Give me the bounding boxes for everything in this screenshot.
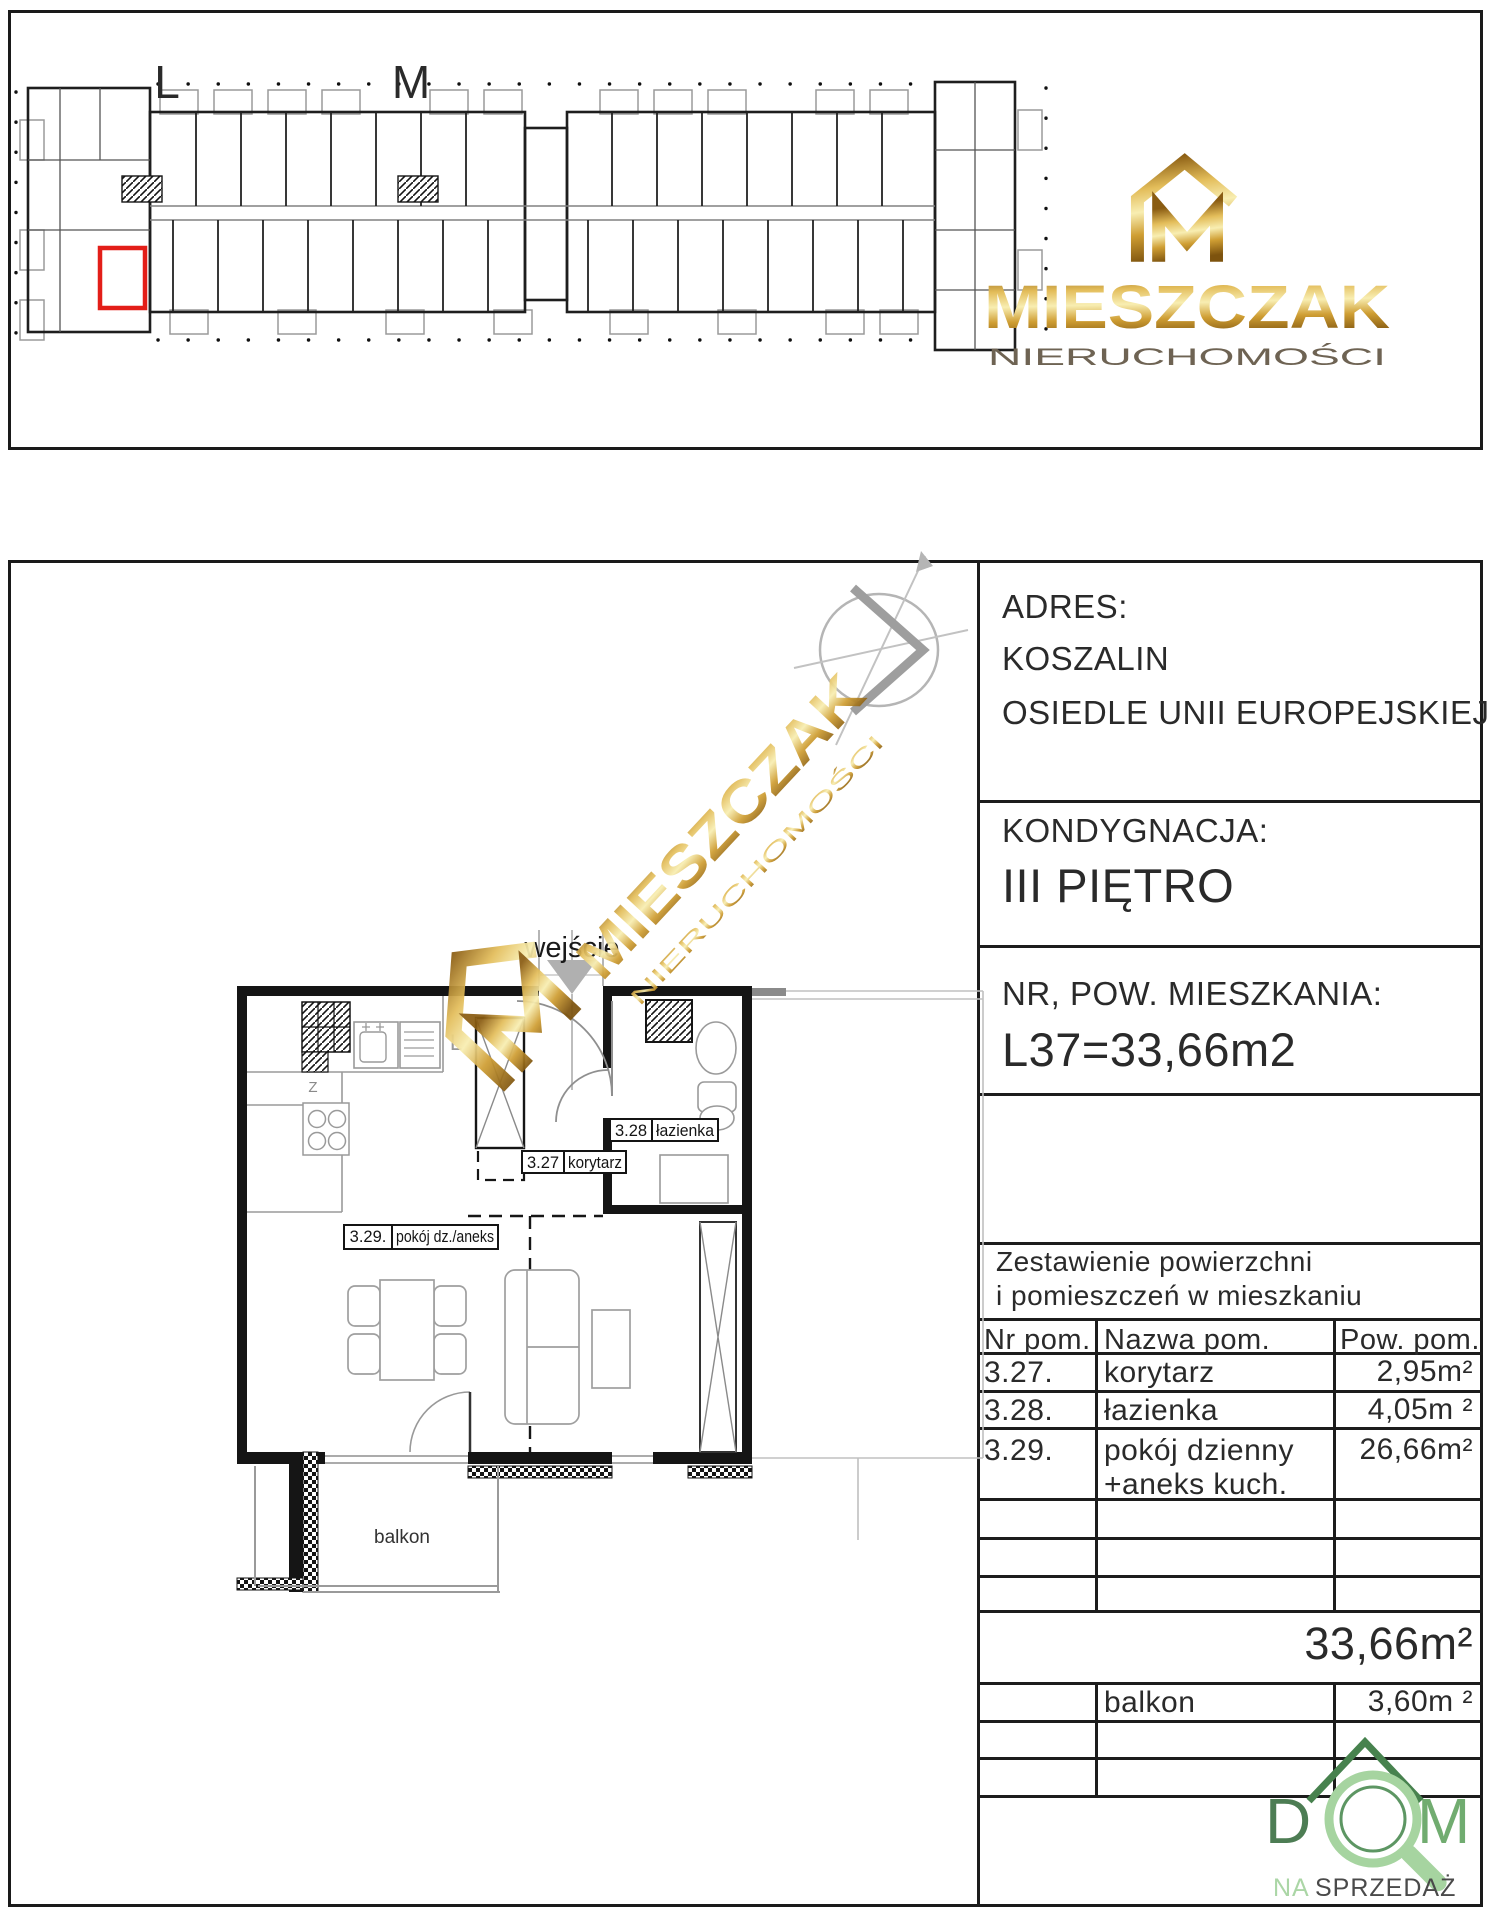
table-row-nr: 3.27. <box>984 1356 1053 1390</box>
floor-value: III PIĘTRO <box>1002 858 1234 913</box>
table-row-area: 4,05m ² <box>1335 1393 1473 1427</box>
table-row-name: łazienka <box>1104 1394 1218 1428</box>
grid-line <box>977 1720 1483 1723</box>
table-col-divider <box>1095 1318 1098 1610</box>
grid-line <box>977 1537 1483 1540</box>
grid-line <box>977 1610 1483 1613</box>
table-title-line2: i pomieszczeń w mieszkaniu <box>996 1280 1362 1312</box>
grid-line <box>977 800 1483 803</box>
table-row-nr: 3.28. <box>984 1394 1053 1428</box>
grid-line <box>977 1575 1483 1578</box>
table-title-line1: Zestawienie powierzchni <box>996 1246 1313 1278</box>
grid-line <box>977 1318 1483 1321</box>
address-label: ADRES: <box>1002 588 1128 626</box>
unit-label: NR, POW. MIESZKANIA: <box>1002 975 1382 1013</box>
floor-label: KONDYGNACJA: <box>1002 812 1268 850</box>
grid-line <box>977 1242 1483 1245</box>
table-row-name: pokój dzienny <box>1104 1434 1294 1468</box>
grid-line <box>977 1795 1483 1798</box>
table-header-area: Pow. pom. <box>1340 1324 1480 1357</box>
grid-line <box>977 1757 1483 1760</box>
column-divider <box>977 560 980 1907</box>
address-city: KOSZALIN <box>1002 640 1169 678</box>
total-area: 33,66m² <box>1150 1618 1473 1670</box>
table-row-name: korytarz <box>1104 1356 1215 1390</box>
table-row-nr: 3.29. <box>984 1434 1053 1468</box>
table-col-divider <box>1095 1682 1098 1795</box>
address-district: OSIEDLE UNII EUROPEJSKIEJ <box>1002 694 1489 732</box>
table-row-name2: +aneks kuch. <box>1104 1468 1288 1502</box>
table-header-name: Nazwa pom. <box>1104 1324 1270 1357</box>
balcony-row-name: balkon <box>1104 1686 1195 1720</box>
bottom-section-frame <box>8 560 1483 1907</box>
top-section-frame <box>8 10 1483 450</box>
balcony-row-area: 3,60m ² <box>1335 1685 1473 1719</box>
floorplan-document: ADRES: KOSZALIN OSIEDLE UNII EUROPEJSKIE… <box>0 0 1499 1920</box>
table-row-area: 26,66m² <box>1335 1433 1473 1467</box>
unit-value: L37=33,66m2 <box>1002 1022 1296 1077</box>
grid-line <box>977 945 1483 948</box>
table-header-nr: Nr pom. <box>984 1324 1091 1357</box>
grid-line <box>977 1093 1483 1096</box>
table-row-area: 2,95m² <box>1335 1355 1473 1389</box>
